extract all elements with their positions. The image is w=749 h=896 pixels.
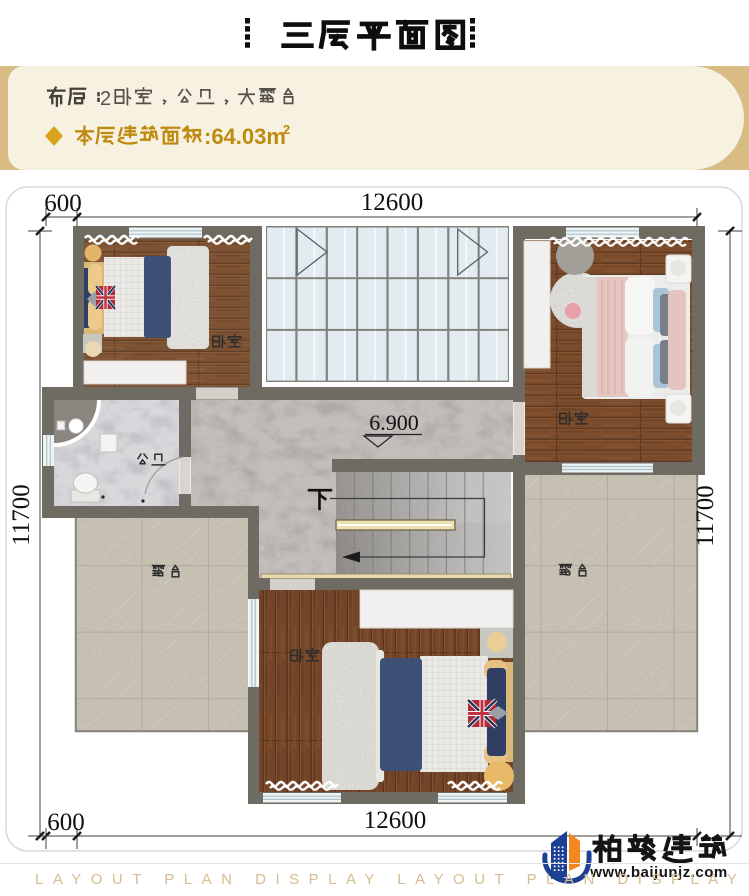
svg-text:11700: 11700 [692, 485, 719, 547]
svg-text:2: 2 [283, 122, 290, 137]
svg-text:6.900: 6.900 [369, 410, 419, 435]
svg-text:2: 2 [100, 88, 111, 110]
svg-text:LAYOUT PLAN DISPLAY LAYOUT PLA: LAYOUT PLAN DISPLAY LAYOUT PLAN DISPLAY [35, 871, 746, 888]
svg-text:600: 600 [47, 809, 85, 836]
svg-text:11700: 11700 [8, 484, 35, 546]
svg-text:600: 600 [44, 190, 82, 217]
svg-text:12600: 12600 [361, 189, 424, 216]
svg-text::64.03m: :64.03m [204, 124, 286, 149]
svg-text:12600: 12600 [364, 807, 427, 834]
